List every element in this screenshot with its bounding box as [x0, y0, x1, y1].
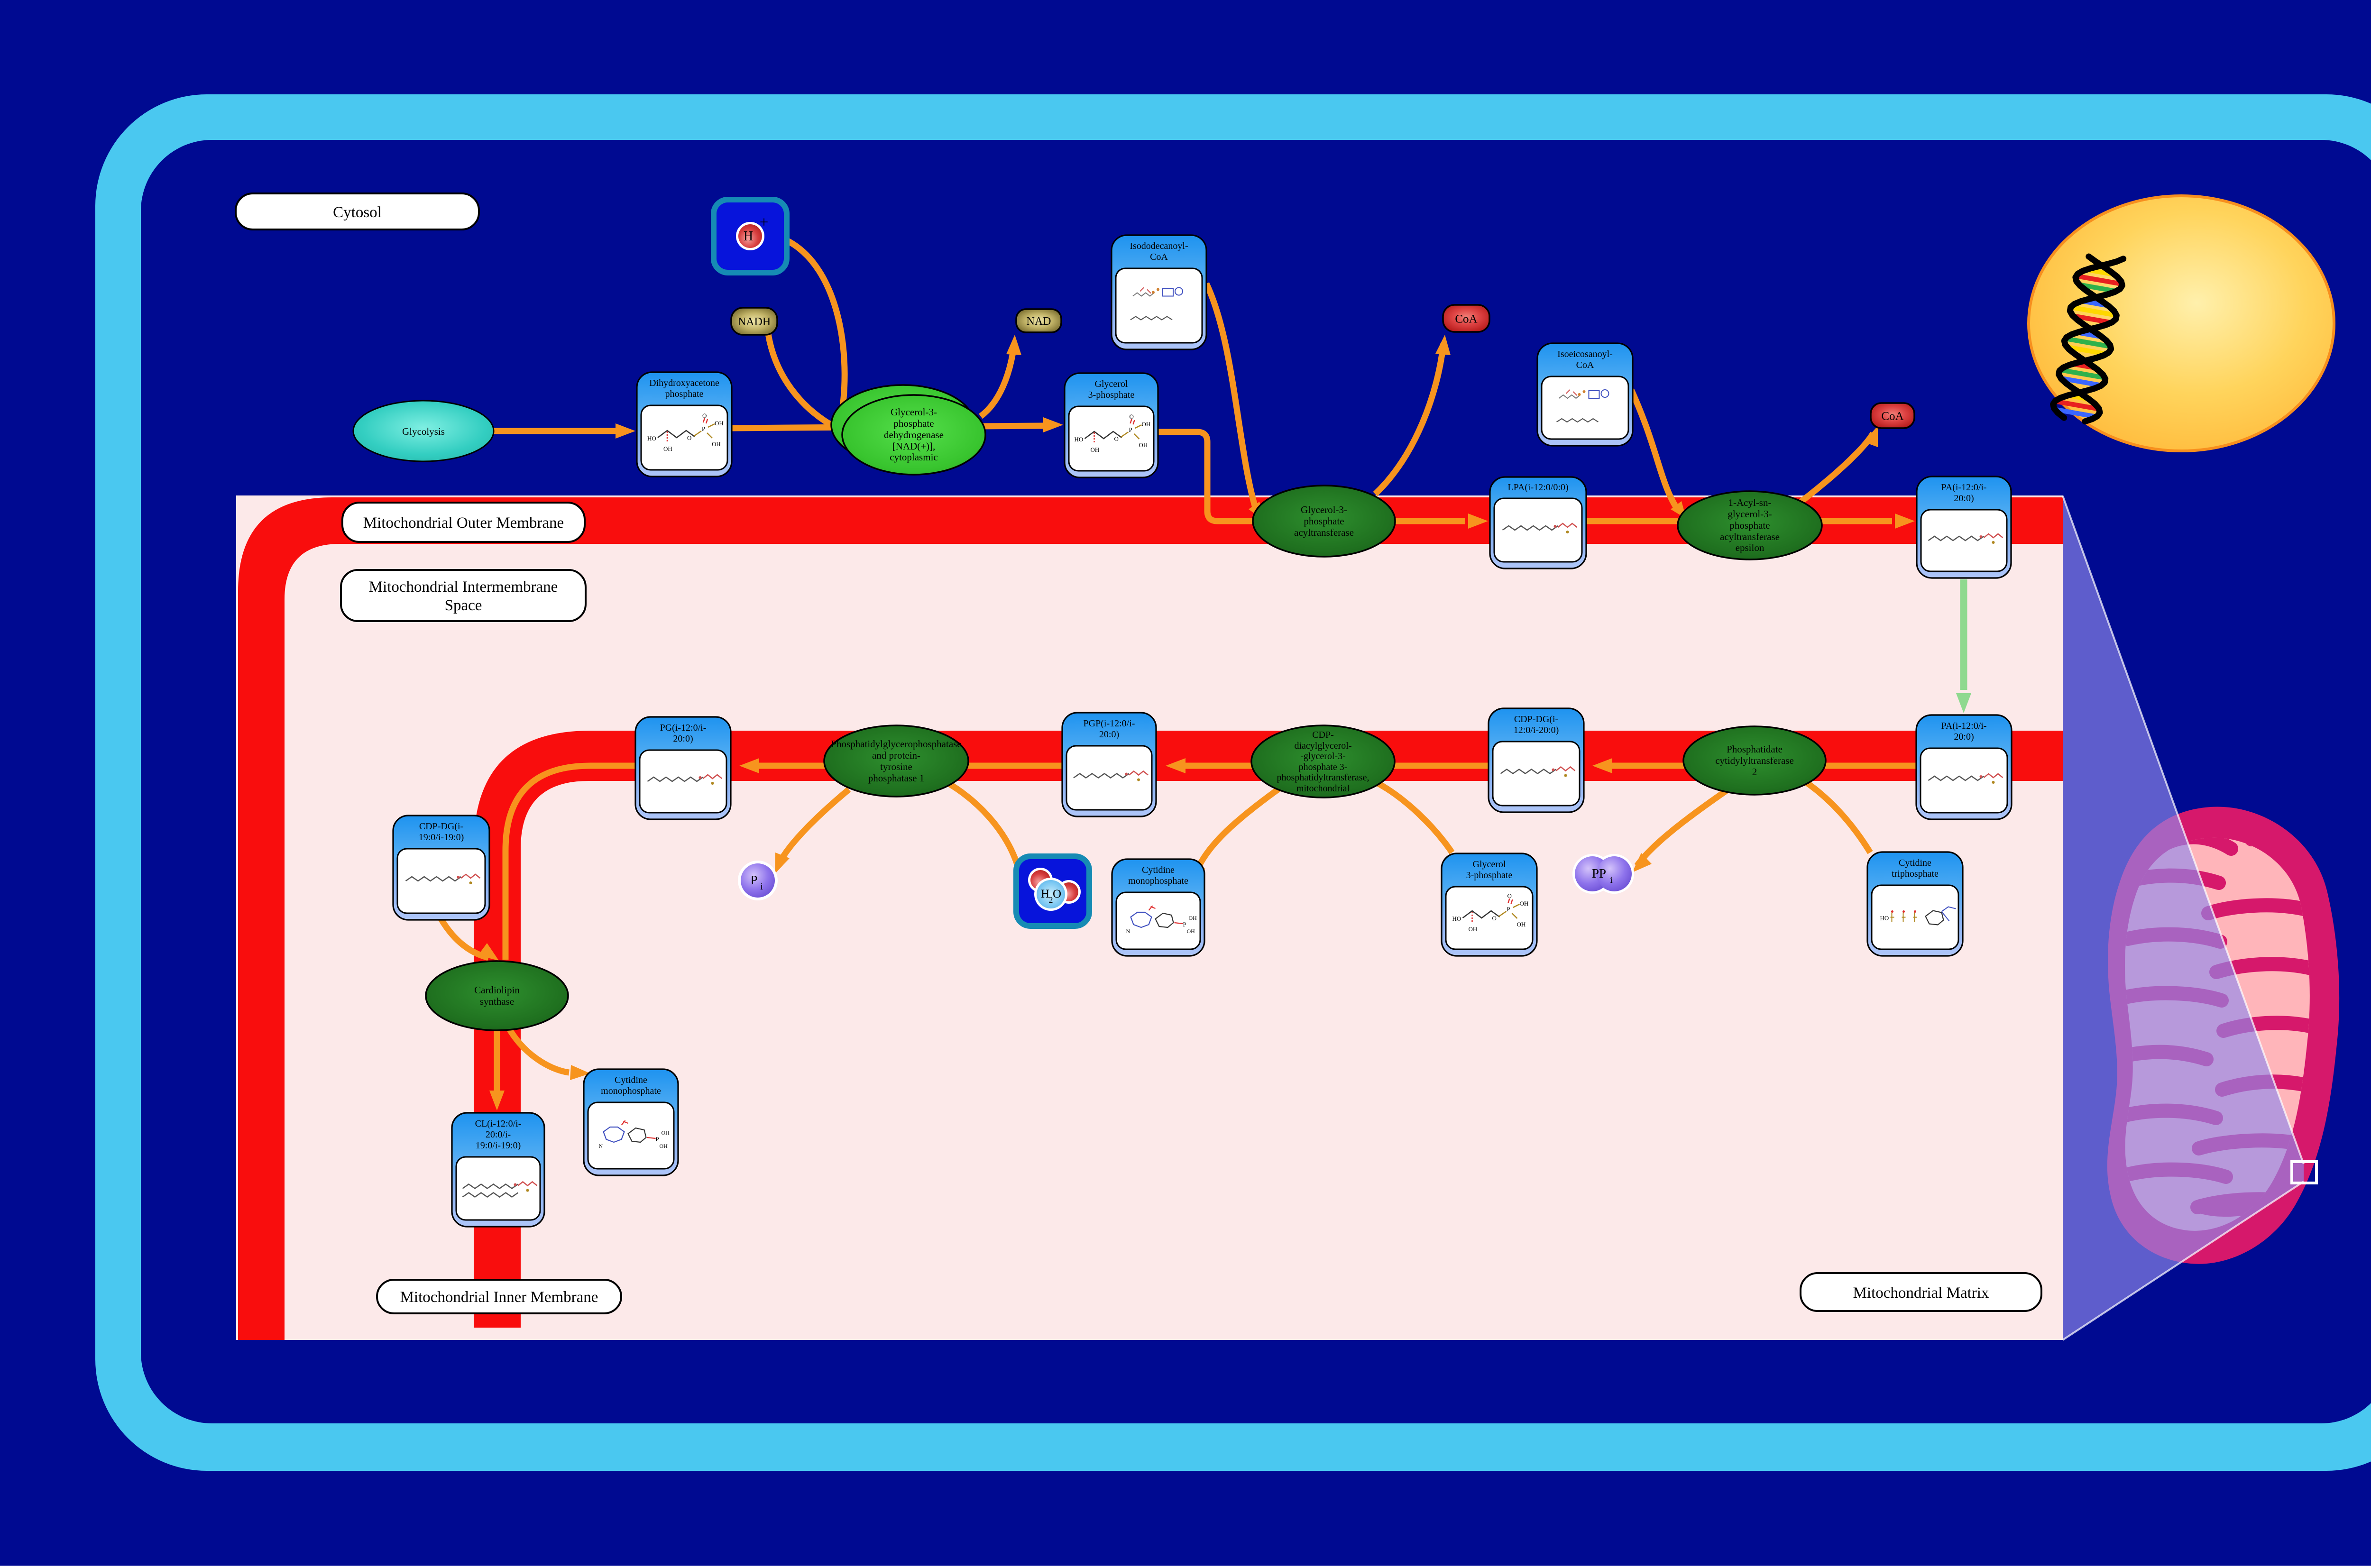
svg-text:O: O	[1507, 892, 1512, 899]
svg-text:19:0/i-19:0): 19:0/i-19:0)	[419, 832, 464, 843]
svg-text:PA(i-12:0/i-: PA(i-12:0/i-	[1941, 482, 1987, 493]
svg-text:Phosphatidylglycerophosphatase: Phosphatidylglycerophosphatase	[831, 738, 961, 750]
svg-text:acyltransferase: acyltransferase	[1720, 531, 1780, 542]
svg-text:Cytosol: Cytosol	[333, 204, 382, 221]
svg-text:1-Acyl-sn-: 1-Acyl-sn-	[1728, 497, 1772, 508]
svg-text:H: H	[744, 229, 753, 244]
svg-text:i: i	[760, 881, 763, 892]
svg-text:NADH: NADH	[738, 316, 771, 328]
svg-text:cytoplasmic: cytoplasmic	[890, 451, 937, 463]
svg-text:HO: HO	[1880, 915, 1889, 922]
svg-text:triphosphate: triphosphate	[1892, 869, 1939, 879]
svg-text:20:0): 20:0)	[1954, 493, 1974, 504]
svg-text:OH: OH	[715, 420, 724, 427]
svg-text:Mitochondrial Outer Membrane: Mitochondrial Outer Membrane	[363, 514, 564, 532]
svg-text:OH: OH	[1187, 928, 1195, 935]
svg-text:CoA: CoA	[1576, 360, 1594, 370]
svg-text:i: i	[1610, 875, 1613, 885]
svg-text:OH: OH	[662, 1129, 670, 1136]
svg-text:PP: PP	[1592, 866, 1606, 880]
svg-text:3-phosphate: 3-phosphate	[1088, 390, 1135, 400]
svg-text:OH: OH	[660, 1143, 668, 1149]
svg-text:O: O	[1114, 435, 1119, 442]
svg-text:OH: OH	[1142, 421, 1151, 428]
svg-text:P: P	[1129, 426, 1132, 433]
svg-text:12:0/i-20:0): 12:0/i-20:0)	[1514, 725, 1559, 735]
svg-text:20:0): 20:0)	[1954, 732, 1974, 742]
svg-text:O: O	[1053, 888, 1061, 900]
svg-text:2: 2	[1752, 766, 1757, 778]
svg-text:diacylglycerol-: diacylglycerol-	[1294, 741, 1351, 751]
svg-text:Cardiolipin: Cardiolipin	[474, 984, 520, 996]
svg-text:OH: OH	[712, 440, 721, 448]
svg-text:HO: HO	[1452, 915, 1461, 922]
svg-text:CDP-: CDP-	[1312, 730, 1334, 740]
svg-text:CDP-DG(i-: CDP-DG(i-	[1514, 714, 1558, 724]
svg-text:-glycerol-3-: -glycerol-3-	[1300, 751, 1346, 761]
svg-text:Dihydroxyacetone: Dihydroxyacetone	[649, 378, 719, 388]
svg-text:Glycerol: Glycerol	[1473, 859, 1506, 870]
svg-text:Space: Space	[445, 597, 482, 614]
svg-text:phosphate: phosphate	[1304, 515, 1344, 527]
svg-text:Mitochondrial Matrix: Mitochondrial Matrix	[1853, 1284, 1989, 1302]
svg-text:20:0/i-: 20:0/i-	[486, 1129, 511, 1140]
svg-text:HO: HO	[1075, 436, 1084, 443]
svg-text:P: P	[702, 425, 705, 432]
svg-text:OH: OH	[1517, 921, 1526, 928]
svg-text:20:0): 20:0)	[1099, 729, 1119, 740]
svg-text:Mitochondrial Intermembrane: Mitochondrial Intermembrane	[369, 578, 558, 596]
svg-text:P: P	[750, 873, 757, 887]
svg-text:NAD: NAD	[1027, 315, 1051, 328]
svg-text:and protein-: and protein-	[872, 750, 920, 761]
svg-text:Cytidine: Cytidine	[615, 1075, 647, 1085]
svg-text:OH: OH	[1189, 915, 1197, 921]
svg-text:Glycerol-3-: Glycerol-3-	[891, 406, 937, 418]
svg-text:Glycerol-3-: Glycerol-3-	[1301, 504, 1347, 515]
svg-text:monophosphate: monophosphate	[1128, 876, 1188, 886]
svg-text:Isoeicosanoyl-: Isoeicosanoyl-	[1557, 349, 1613, 359]
svg-text:3-phosphate: 3-phosphate	[1466, 870, 1513, 880]
svg-text:CoA: CoA	[1150, 252, 1168, 262]
svg-text:P: P	[1183, 921, 1186, 928]
svg-text:dehydrogenase: dehydrogenase	[884, 429, 944, 440]
svg-text:Mitochondrial Inner Membrane: Mitochondrial Inner Membrane	[400, 1289, 598, 1306]
svg-text:OH: OH	[1091, 446, 1100, 453]
svg-text:HO: HO	[647, 435, 656, 442]
svg-text:P: P	[656, 1136, 659, 1143]
svg-text:Cytidine: Cytidine	[1899, 858, 1931, 868]
svg-text:OH: OH	[663, 445, 672, 452]
svg-text:Cytidine: Cytidine	[1142, 865, 1175, 875]
svg-text:tyrosine: tyrosine	[880, 761, 912, 772]
svg-text:N: N	[1126, 928, 1130, 935]
svg-text:phosphate 3-: phosphate 3-	[1299, 762, 1348, 772]
svg-text:CDP-DG(i-: CDP-DG(i-	[419, 821, 463, 832]
svg-text:Glycolysis: Glycolysis	[402, 426, 445, 437]
svg-text:phosphate: phosphate	[1729, 520, 1770, 531]
svg-text:CoA: CoA	[1455, 312, 1477, 325]
svg-text:CL(i-12:0/i-: CL(i-12:0/i-	[475, 1119, 522, 1129]
svg-text:+: +	[760, 214, 769, 231]
svg-text:OH: OH	[1469, 926, 1478, 933]
svg-text:P: P	[1507, 906, 1510, 913]
svg-text:PG(i-12:0/i-: PG(i-12:0/i-	[660, 723, 707, 733]
svg-text:N: N	[599, 1143, 603, 1149]
svg-text:glycerol-3-: glycerol-3-	[1728, 508, 1772, 520]
svg-text:monophosphate: monophosphate	[601, 1086, 661, 1096]
svg-text:[NAD(+)],: [NAD(+)],	[892, 440, 936, 452]
svg-text:OH: OH	[1520, 900, 1529, 907]
svg-text:LPA(i-12:0/0:0): LPA(i-12:0/0:0)	[1507, 482, 1568, 493]
svg-text:mitochondrial: mitochondrial	[1296, 783, 1350, 794]
svg-text:O: O	[1130, 413, 1134, 420]
svg-text:phosphate: phosphate	[665, 389, 703, 399]
svg-text:phosphatase 1: phosphatase 1	[868, 772, 924, 784]
svg-text:H: H	[1041, 888, 1049, 900]
svg-text:synthase: synthase	[480, 996, 514, 1007]
svg-text:Isododecanoyl-: Isododecanoyl-	[1130, 241, 1188, 251]
svg-text:cytidylyltransferase: cytidylyltransferase	[1715, 755, 1794, 766]
svg-text:phosphatidyltransferase,: phosphatidyltransferase,	[1277, 772, 1369, 783]
svg-text:O: O	[687, 434, 691, 441]
svg-text:Glycerol: Glycerol	[1095, 379, 1128, 389]
svg-text:epsilon: epsilon	[1736, 542, 1764, 553]
svg-text:O: O	[702, 412, 707, 419]
svg-text:Phosphatidate: Phosphatidate	[1727, 743, 1783, 755]
svg-text:OH: OH	[1139, 441, 1148, 449]
svg-text:PA(i-12:0/i-: PA(i-12:0/i-	[1941, 721, 1987, 731]
svg-text:O: O	[1492, 915, 1497, 922]
svg-text:CoA: CoA	[1881, 410, 1903, 422]
svg-text:19:0/i-19:0): 19:0/i-19:0)	[476, 1140, 521, 1151]
svg-text:PGP(i-12:0/i-: PGP(i-12:0/i-	[1084, 718, 1135, 729]
svg-text:acyltransferase: acyltransferase	[1294, 527, 1354, 538]
svg-text:20:0): 20:0)	[673, 734, 693, 744]
svg-text:phosphate: phosphate	[893, 418, 934, 429]
